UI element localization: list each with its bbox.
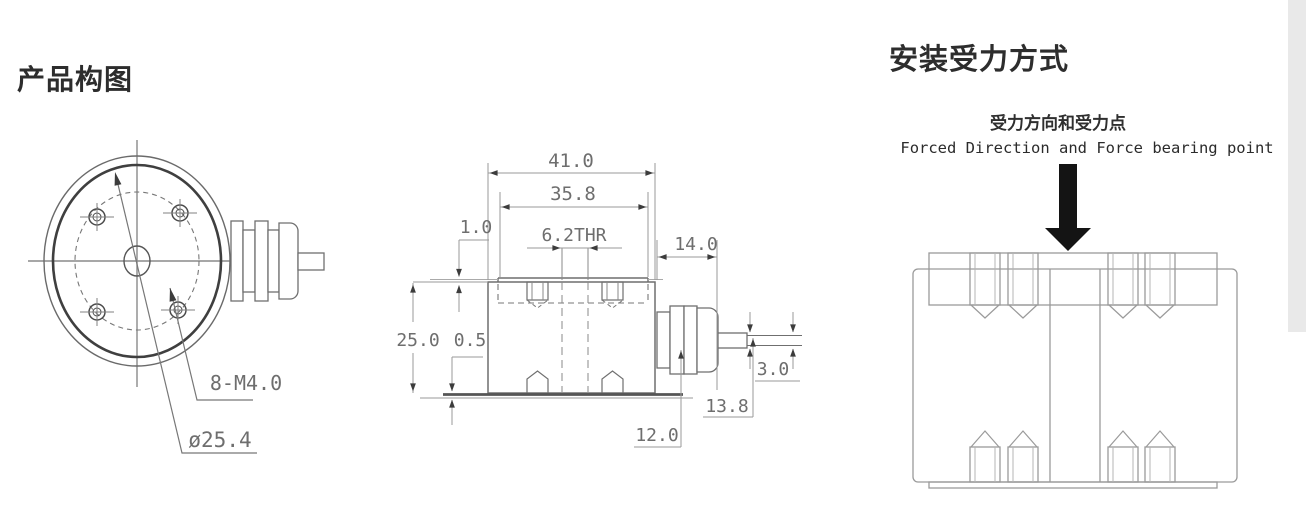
dim-plate-step-label: 1.0: [460, 217, 493, 238]
bolt-hole: [80, 298, 114, 326]
bottom-mounting-plate: [929, 482, 1217, 488]
bolt: [1145, 431, 1175, 482]
side-view-drawing: 41.0 35.8 1.0 6.2THR 14.0 25.0 0.5 3.0 1…: [396, 150, 802, 447]
center-through-hole: [562, 248, 588, 392]
sensor-block: [913, 269, 1237, 482]
leader-bolt-pattern-arrowhead: [170, 288, 177, 302]
cable-stub: [298, 253, 324, 270]
dim-overall-width-label: 41.0: [548, 150, 594, 172]
force-direction-arrow: [1045, 164, 1091, 251]
bolt: [1145, 253, 1175, 318]
bolt-hole: [163, 199, 197, 227]
dim-plate-width-label: 35.8: [550, 183, 596, 205]
left-section-title: 产品构图: [17, 58, 133, 98]
bolt: [1108, 431, 1138, 482]
dim-cable-center-offset-label: 12.0: [635, 425, 678, 446]
sensor-body: [488, 282, 655, 393]
force-caption-en: Forced Direction and Force bearing point: [874, 139, 1300, 157]
bolt-circle-diameter-label: ø25.4: [188, 428, 251, 452]
top-plate-hidden-edges: [498, 284, 648, 303]
dim-cable-top-offset-label: 13.8: [705, 396, 748, 417]
top-bolts: [970, 253, 1175, 318]
bottom-bolts: [970, 431, 1175, 482]
bolt: [1008, 431, 1038, 482]
cable-gland-front: [231, 221, 324, 301]
dim-connector-length-label: 14.0: [674, 234, 717, 255]
dim-body-height-label: 25.0: [396, 330, 439, 351]
top-mounting-plate: [929, 253, 1217, 305]
bolt-hole: [80, 203, 114, 231]
force-caption-zh: 受力方向和受力点: [880, 109, 1236, 134]
leader-diameter-arrowhead: [115, 172, 122, 186]
dim-cable-diameter-label: 3.0: [757, 359, 790, 380]
technical-drawing-canvas: 8-M4.0 ø25.4: [0, 0, 1306, 521]
bolt: [970, 253, 1000, 318]
bolt: [1108, 253, 1138, 318]
mounting-diagram: [913, 164, 1237, 488]
bolt: [1008, 253, 1038, 318]
cable-wire: [718, 333, 747, 348]
page-gutter-strip: [1288, 0, 1306, 332]
bolt-pattern-label: 8-M4.0: [210, 371, 282, 395]
bolt-holes: [80, 199, 197, 326]
top-tapped-holes: [527, 282, 623, 308]
dim-center-hole-label: 6.2THR: [541, 225, 606, 246]
dim-base-step-label: 0.5: [454, 330, 487, 351]
bottom-tapped-holes: [527, 371, 623, 393]
front-view-drawing: 8-M4.0 ø25.4: [28, 140, 324, 453]
right-section-title: 安装受力方式: [889, 36, 1069, 78]
bolt: [970, 431, 1000, 482]
